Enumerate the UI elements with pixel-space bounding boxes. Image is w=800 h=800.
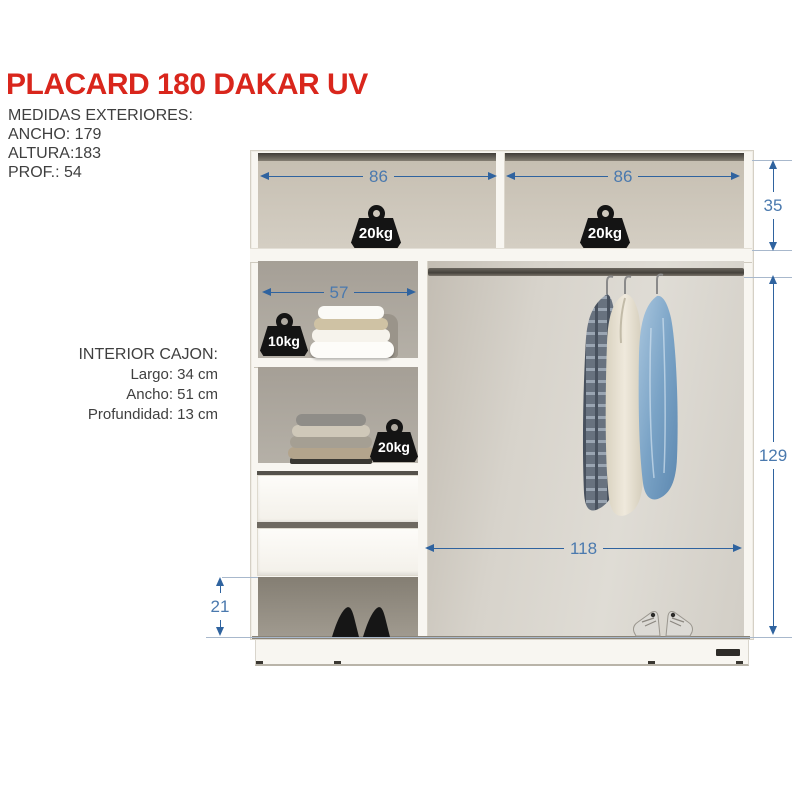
weight-20kg-sweater-shelf: 20kg <box>370 419 418 462</box>
dimension-value: 86 <box>369 168 388 185</box>
spec-depth: PROF.: 54 <box>8 163 193 182</box>
page-title: PLACARD 180 DAKAR UV <box>6 68 368 102</box>
dimension-bottom-width: 118 <box>425 540 742 556</box>
towel-layer <box>310 341 394 358</box>
drawer-1 <box>257 475 422 524</box>
weight-20kg-top-left: 20kg <box>351 205 401 248</box>
center-vertical-divider <box>418 261 428 637</box>
brand-label <box>716 649 740 656</box>
arrowhead-down-icon <box>769 242 777 251</box>
weight-label: 20kg <box>351 218 401 248</box>
denim-shirt <box>639 296 678 500</box>
weight-label: 20kg <box>580 218 630 248</box>
towel-stack <box>310 306 394 358</box>
arrowhead-right-icon <box>731 172 740 180</box>
hanger-hook-icon <box>607 277 613 294</box>
cream-jacket <box>606 294 644 516</box>
product-diagram: PLACARD 180 DAKAR UV MEDIDAS EXTERIORES:… <box>0 0 800 800</box>
spec-height: ALTURA:183 <box>8 144 193 163</box>
drawer-2 <box>257 528 422 576</box>
heel-right <box>363 607 390 637</box>
hanger-hook-icon <box>625 277 631 294</box>
dimension-value: 35 <box>764 197 783 214</box>
exterior-measures: MEDIDAS EXTERIORES: ANCHO: 179 ALTURA:18… <box>8 106 193 182</box>
drawer-info-length: Largo: 34 cm <box>28 365 218 385</box>
drawer-interior-info: INTERIOR CAJON: Largo: 34 cm Ancho: 51 c… <box>28 345 218 425</box>
arrowhead-right-icon <box>488 172 497 180</box>
shelf-2 <box>254 463 424 471</box>
sneaker-toe-left <box>651 613 655 617</box>
base-plinth <box>255 639 749 666</box>
ext-line-bottom <box>206 637 792 638</box>
sweater-layer <box>288 447 374 459</box>
sneaker-toe-right <box>671 613 675 617</box>
sneaker-left <box>634 612 661 637</box>
dimension-value: 21 <box>211 598 230 615</box>
spec-width: ANCHO: 179 <box>8 125 193 144</box>
weight-label: 10kg <box>260 326 308 356</box>
towel-layer <box>318 306 384 319</box>
dimension-value: 57 <box>330 284 349 301</box>
drawer-info-width: Ancho: 51 cm <box>28 385 218 405</box>
weight-label: 20kg <box>370 432 418 462</box>
dimension-top-right-width: 86 <box>506 168 740 184</box>
drawer-info-heading: INTERIOR CAJON: <box>28 345 218 365</box>
arrowhead-right-icon <box>407 288 416 296</box>
sneakers <box>630 608 696 638</box>
dimension-main-height: 129 <box>765 275 781 635</box>
dimension-top-height: 35 <box>765 160 781 251</box>
drawer-info-depth: Profundidad: 13 cm <box>28 405 218 425</box>
top-vertical-divider <box>496 153 505 248</box>
arrowhead-up-icon <box>769 275 777 284</box>
arrowhead-left-icon <box>506 172 515 180</box>
towel-layer <box>314 318 388 330</box>
arrowhead-left-icon <box>260 172 269 180</box>
dimension-value: 86 <box>614 168 633 185</box>
foot-mid-right <box>648 661 655 664</box>
dimension-shoe-height: 21 <box>212 577 228 636</box>
arrowhead-left-icon <box>425 544 434 552</box>
arrowhead-left-icon <box>262 288 271 296</box>
arrowhead-down-icon <box>216 627 224 636</box>
foot-left <box>256 661 263 664</box>
dimension-top-left-width: 86 <box>260 168 497 184</box>
arrowhead-down-icon <box>769 626 777 635</box>
arrowhead-right-icon <box>733 544 742 552</box>
hanging-clothes <box>566 268 696 518</box>
foot-right <box>736 661 743 664</box>
dimension-shelf-width: 57 <box>262 284 416 300</box>
weight-20kg-top-right: 20kg <box>580 205 630 248</box>
sneaker-right <box>666 612 693 637</box>
arrowhead-up-icon <box>769 160 777 169</box>
hanger-hook-icon <box>657 275 663 294</box>
foot-mid-left <box>334 661 341 664</box>
weight-10kg-towel-shelf: 10kg <box>260 313 308 356</box>
sweater-stack <box>286 414 374 464</box>
dimension-value: 118 <box>570 540 597 557</box>
dimension-value: 129 <box>759 447 787 464</box>
sweater-layer <box>290 436 372 448</box>
sweater-layer <box>296 414 366 426</box>
black-heels <box>330 604 394 638</box>
towel-layer <box>312 329 390 342</box>
arrowhead-up-icon <box>216 577 224 586</box>
exterior-measures-heading: MEDIDAS EXTERIORES: <box>8 106 193 125</box>
heel-left <box>332 607 359 637</box>
sweater-layer <box>292 425 370 437</box>
